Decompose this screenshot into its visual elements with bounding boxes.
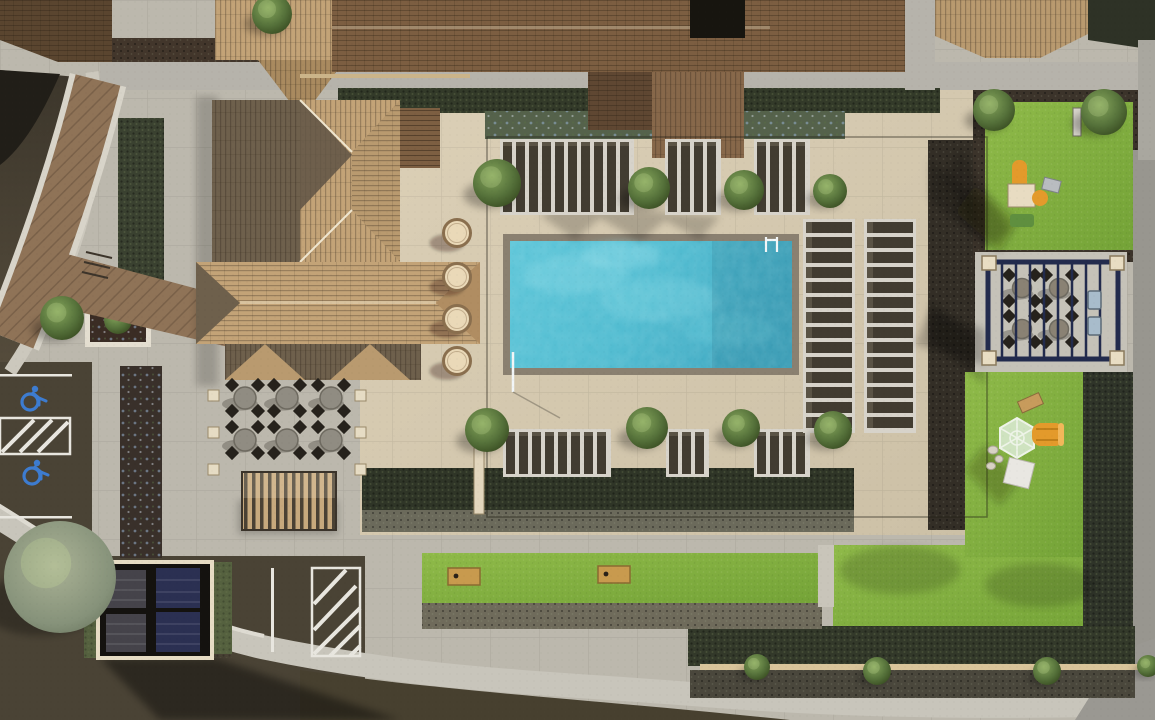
courtyard-aerial-svg <box>0 0 1155 720</box>
site-plan-rendering <box>0 0 1155 720</box>
grain-overlay <box>0 0 1155 720</box>
